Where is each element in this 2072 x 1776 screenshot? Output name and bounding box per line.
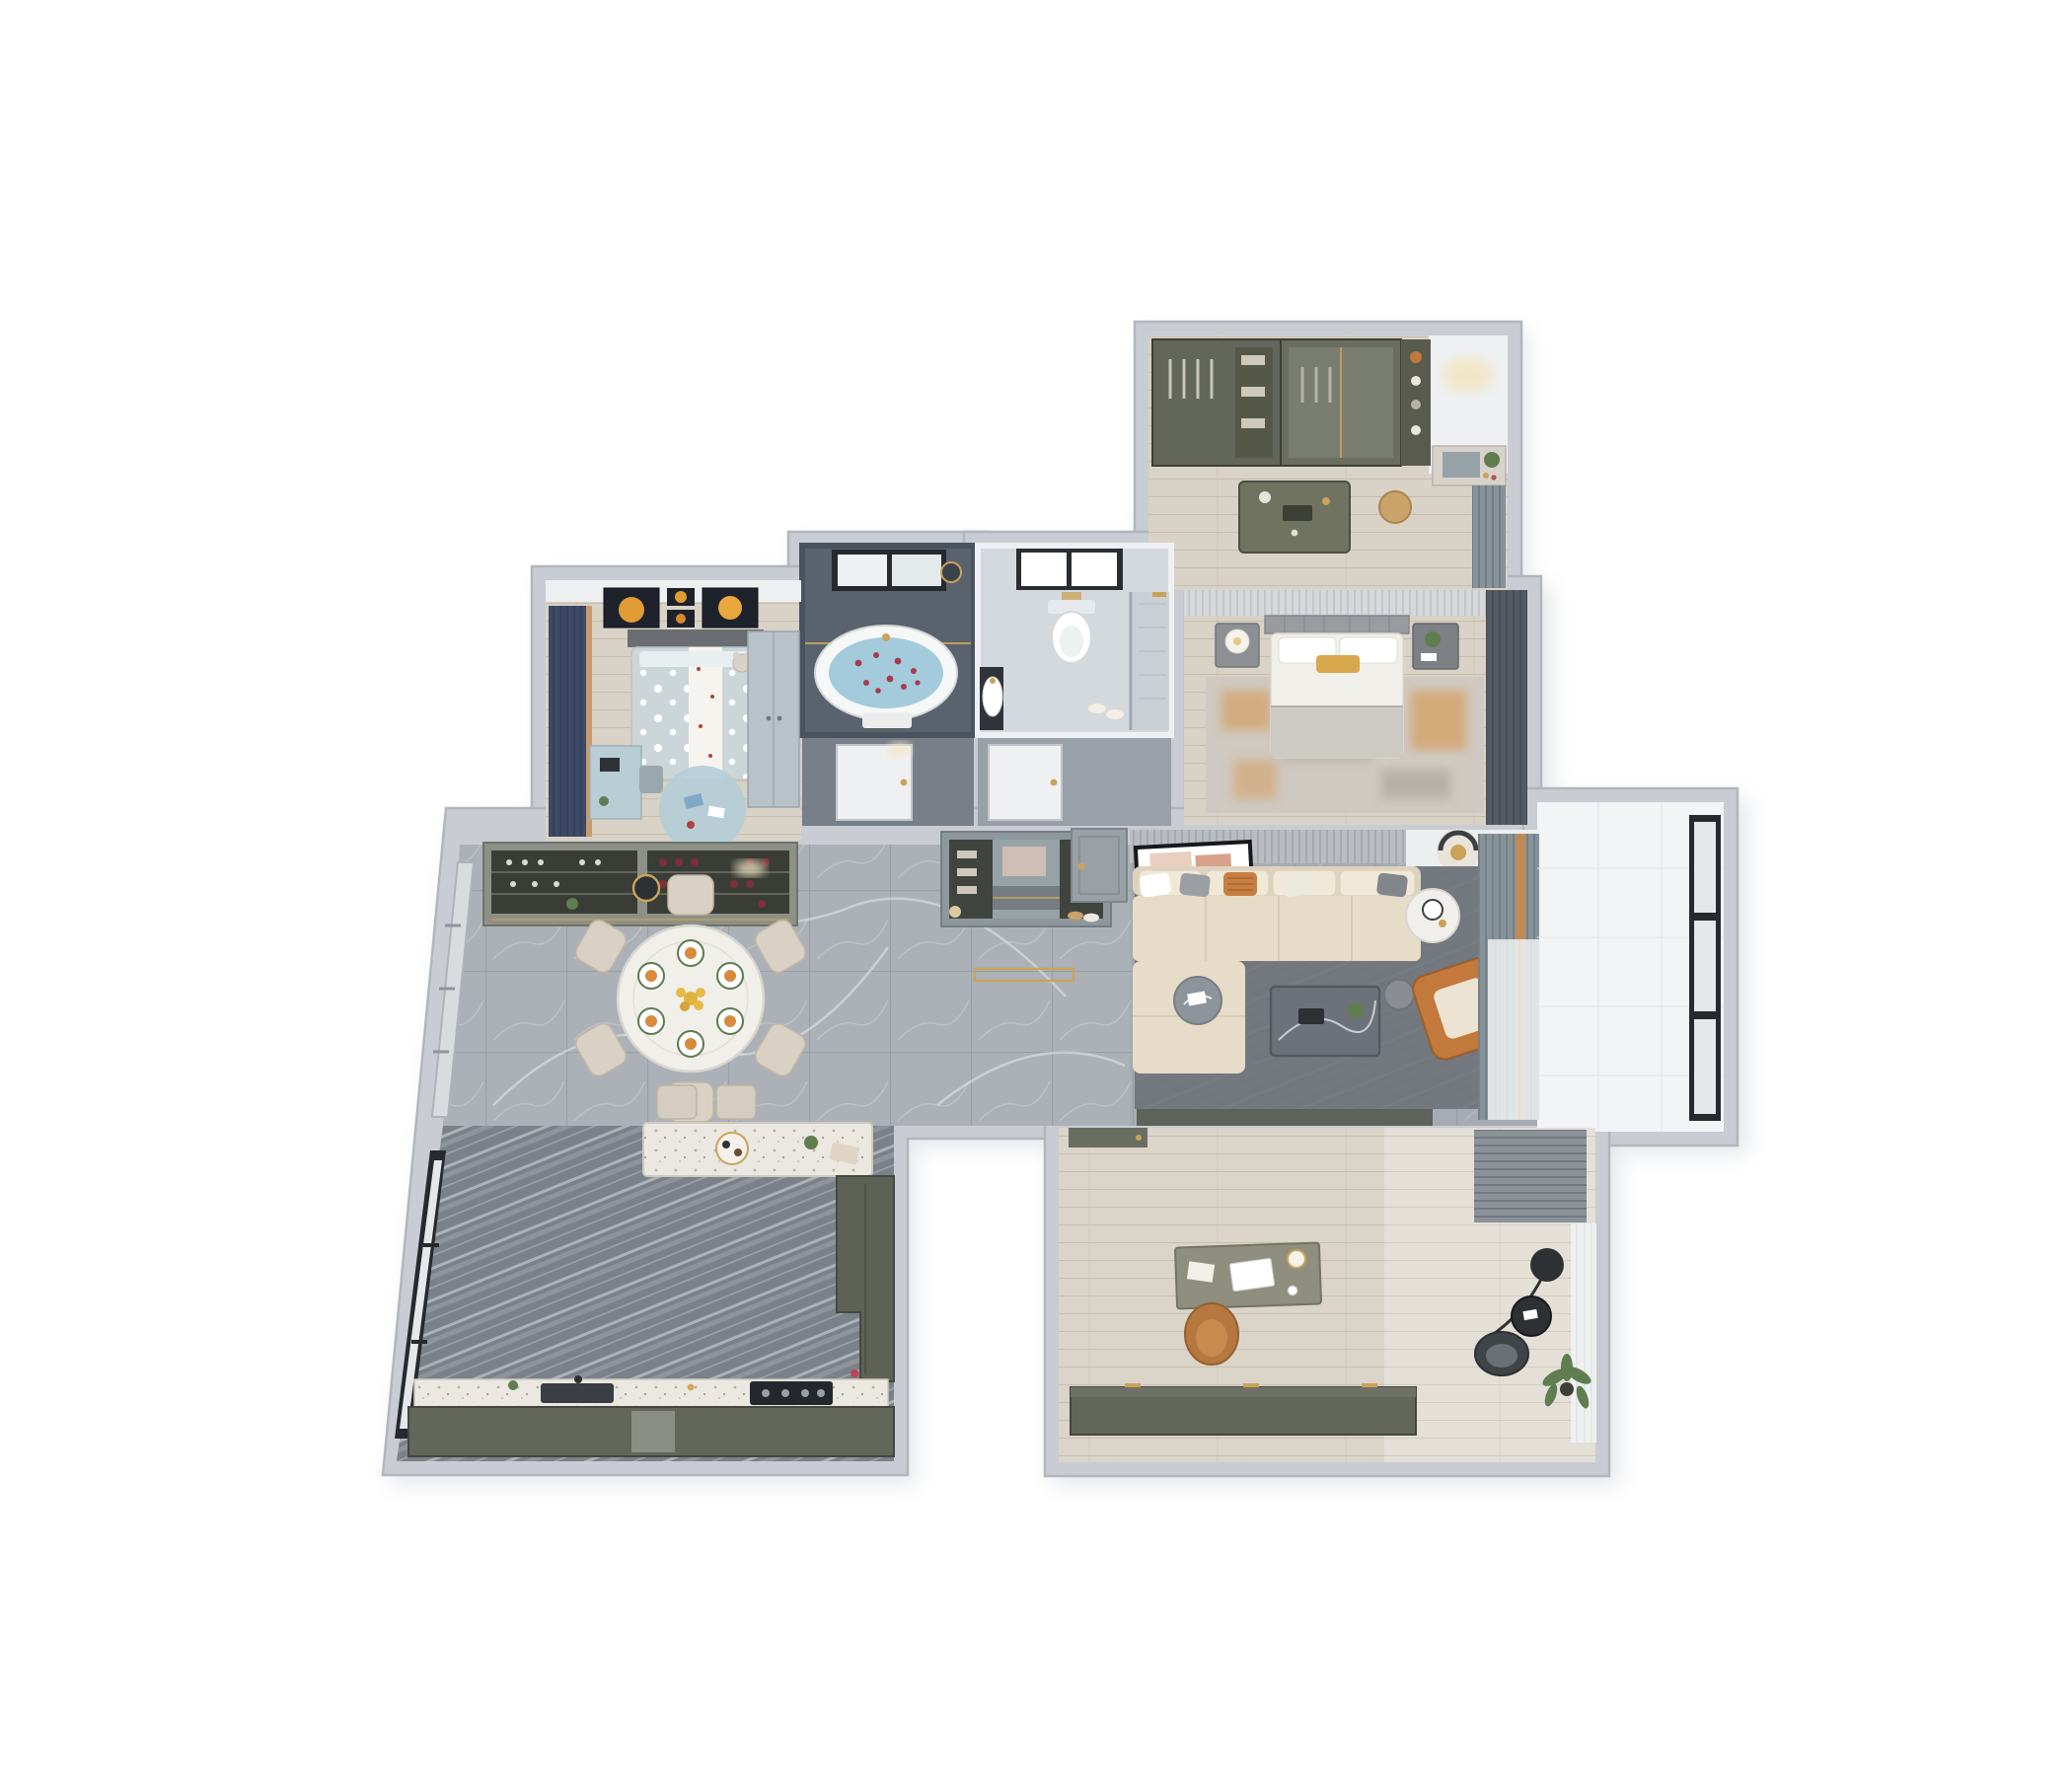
layered-curtains bbox=[1478, 834, 1539, 1120]
island-plant bbox=[804, 1136, 818, 1149]
polka-dot-bed bbox=[628, 629, 764, 779]
kids-wardrobe bbox=[748, 631, 799, 807]
kids-headboard bbox=[628, 629, 764, 647]
ceiling-light bbox=[1437, 829, 1480, 872]
navy-curtains bbox=[549, 606, 592, 837]
sink bbox=[541, 1383, 614, 1403]
room-living bbox=[1130, 829, 1539, 1126]
recessed-light bbox=[1443, 357, 1494, 393]
double-bed bbox=[1265, 616, 1409, 758]
wash-basin bbox=[980, 667, 1003, 730]
faucet bbox=[574, 1375, 582, 1383]
glass-shower bbox=[1131, 592, 1169, 730]
writing-desk bbox=[1175, 1242, 1321, 1308]
slipper bbox=[1106, 709, 1124, 719]
notebook bbox=[1187, 1261, 1215, 1282]
black-frame-window bbox=[832, 550, 946, 591]
rattan-basket bbox=[1379, 491, 1411, 523]
wall-hung-toilet bbox=[1048, 592, 1095, 663]
flowers bbox=[1259, 491, 1271, 503]
sofa-seat bbox=[1133, 896, 1421, 961]
cabinet-lamp-glow bbox=[949, 906, 961, 918]
bed-runner bbox=[689, 647, 722, 779]
arc-floor-lamp bbox=[1530, 1248, 1564, 1282]
freestanding-bathtub bbox=[815, 626, 957, 720]
floor-to-ceiling-window bbox=[1689, 815, 1721, 1121]
marble-coffee-table bbox=[1271, 987, 1379, 1056]
pendant-light bbox=[633, 875, 659, 901]
tub-faucet bbox=[882, 633, 890, 641]
plant bbox=[1425, 631, 1441, 647]
nightstand-right bbox=[1413, 624, 1458, 669]
tray bbox=[1298, 1008, 1324, 1024]
towel bbox=[862, 712, 912, 728]
door-handle bbox=[1077, 862, 1084, 869]
coffee-cup bbox=[1288, 1286, 1297, 1295]
table-plant bbox=[1348, 1002, 1364, 1018]
low-bookshelf-cabinet bbox=[1071, 1383, 1416, 1435]
kids-laptop bbox=[600, 758, 620, 772]
headboard bbox=[1265, 616, 1409, 633]
red-item bbox=[851, 1369, 858, 1377]
lamp bbox=[1423, 900, 1443, 920]
base-counter bbox=[408, 1375, 894, 1456]
sheer-curtain-study bbox=[1571, 1223, 1596, 1443]
pouf bbox=[1384, 980, 1414, 1009]
desk-lamp bbox=[1288, 1250, 1305, 1268]
roman-blind bbox=[1474, 1130, 1587, 1222]
accent-pillow bbox=[1316, 655, 1360, 673]
living-bottom-ledge bbox=[1137, 1107, 1433, 1126]
entrance-door[interactable] bbox=[1072, 829, 1127, 902]
floor-plan-canvas bbox=[0, 0, 2072, 1776]
bath-b-window bbox=[1016, 549, 1123, 590]
nightstand-left bbox=[1216, 624, 1259, 667]
laptop bbox=[1229, 1258, 1274, 1292]
round-side-table-white bbox=[1406, 889, 1459, 942]
terrazzo-island bbox=[643, 1123, 872, 1176]
mirror-reflection bbox=[1002, 847, 1046, 876]
vanity-with-mirror bbox=[1433, 446, 1506, 485]
throw-blanket bbox=[1271, 706, 1403, 758]
rain-shower-head bbox=[941, 562, 961, 582]
cabinet-plant bbox=[566, 898, 578, 910]
round-side-table-marble bbox=[1174, 977, 1221, 1024]
bath-water bbox=[829, 637, 943, 708]
island-dresser bbox=[1239, 481, 1350, 553]
serving-tray bbox=[716, 1133, 748, 1164]
oven bbox=[631, 1411, 675, 1452]
kids-chair bbox=[639, 766, 663, 793]
office-chair bbox=[1185, 1303, 1238, 1365]
slipper bbox=[1088, 703, 1106, 713]
shower-valve bbox=[1152, 592, 1166, 597]
wine-display-cabinet bbox=[483, 843, 797, 925]
round-play-rug bbox=[659, 766, 746, 852]
